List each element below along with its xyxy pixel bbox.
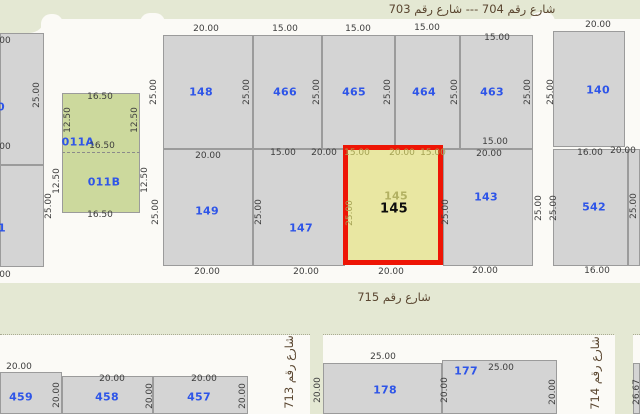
parcel-number-149: 149 (195, 205, 219, 218)
parcel-number-0: 0 (0, 101, 5, 114)
green-area (0, 283, 640, 335)
dimension-label: 20.00 (476, 149, 502, 159)
parcel-number-466: 466 (273, 86, 297, 99)
dimension-label: 20.00 (440, 377, 450, 403)
dimension-label: 20.00 (52, 382, 62, 408)
dimension-label: 20.00 (145, 383, 155, 409)
dimension-label: 12.50 (63, 107, 73, 133)
parcel-number-011B: 011B (88, 176, 121, 189)
parcel-number-147: 147 (289, 222, 313, 235)
dimension-label: 25.00 (151, 199, 161, 225)
parcel-number-178: 178 (373, 384, 397, 397)
dimension-label: 20.00 (378, 267, 404, 277)
dimension-label: 20.00 (311, 148, 337, 158)
dimension-label: 12.50 (140, 167, 150, 193)
parcel-number-457: 457 (187, 391, 211, 404)
dimension-label: 25.00 (546, 79, 556, 105)
parcel-number-148: 148 (189, 86, 213, 99)
dimension-label: 25.00 (312, 79, 322, 105)
dimension-label: 20.00 (472, 266, 498, 276)
dimension-label: 20.00 (585, 20, 611, 30)
parcel-number-465: 465 (342, 86, 366, 99)
dimension-label: 25.00 (549, 195, 559, 221)
dimension-label: 20.00 (293, 267, 319, 277)
parcel-number-140: 140 (586, 84, 610, 97)
dimension-label: 20.00 (389, 148, 415, 158)
dimension-label: 25.00 (441, 199, 451, 225)
dimension-label: 25.00 (32, 82, 42, 108)
dimension-label: 20.00 (548, 379, 558, 405)
street-713: شارع رقم 713 (282, 335, 296, 409)
dimension-label: 15.00 (272, 24, 298, 34)
street-notch (41, 14, 63, 34)
parcel-143[interactable] (443, 149, 533, 266)
dimension-label: 20.00 (238, 383, 248, 409)
dimension-label: 16.50 (87, 210, 113, 220)
green-area (0, 0, 45, 33)
parcel-number-463: 463 (480, 86, 504, 99)
dimension-label: 20.00 (99, 374, 125, 384)
dimension-label: 25.00 (242, 79, 252, 105)
dimension-label: 00 (0, 36, 11, 46)
dimension-label: 16.00 (584, 266, 610, 276)
dimension-label: 25.00 (523, 79, 533, 105)
dimension-label: 00 (0, 142, 11, 152)
parcel-number-458: 458 (95, 391, 119, 404)
street-704-703: شارع رقم 704 --- شارع رقم 703 (389, 2, 556, 16)
dimension-label: 12.50 (52, 168, 62, 194)
street-714: شارع رقم 714 (588, 336, 602, 410)
dimension-label: 25.00 (450, 79, 460, 105)
dimension-label: 16.50 (87, 92, 113, 102)
dimension-label: 25.00 (370, 352, 396, 362)
dimension-label: 15.00 (344, 148, 370, 158)
dimension-label: 16.50 (89, 141, 115, 151)
dimension-label: 15.00 (482, 137, 508, 147)
cadastral-map-canvas[interactable]: 148466465464463140149147143542011A011B01… (0, 0, 640, 414)
dimension-label: 20.00 (194, 267, 220, 277)
dimension-label: 12.50 (130, 107, 140, 133)
parcel-147[interactable] (253, 149, 345, 266)
street-notch (140, 13, 165, 35)
dimension-label: 25.00 (488, 363, 514, 373)
dimension-label: 25.00 (44, 193, 54, 219)
dimension-label: 26.67 (632, 379, 640, 405)
dimension-label: 16.00 (577, 148, 603, 158)
street-715: شارع رقم 715 (357, 290, 431, 304)
dimension-label: 00 (0, 270, 11, 280)
dimension-label: 20.00 (193, 24, 219, 34)
parcel-number-145: 145 (380, 202, 408, 217)
dimension-label: 25.00 (383, 79, 393, 105)
dimension-label: 20.00 (195, 151, 221, 161)
dimension-label: 15.00 (484, 33, 510, 43)
dimension-label: 25.00 (345, 200, 355, 226)
parcel-edge-left-lower[interactable] (0, 165, 44, 267)
parcel-number-464: 464 (412, 86, 436, 99)
dimension-label: 15.00 (270, 148, 296, 158)
dimension-label: 20.00 (313, 377, 323, 403)
dimension-label: 20.00 (610, 146, 636, 156)
parcel-number-1: 1 (0, 222, 6, 235)
dimension-label: 25.00 (629, 193, 639, 219)
dimension-label: 25.00 (149, 79, 159, 105)
dimension-label: 25.00 (534, 195, 544, 221)
green-area (615, 334, 633, 414)
dimension-label: 15.00 (414, 23, 440, 33)
dimension-label: 20.00 (6, 362, 32, 372)
dimension-label: 25.00 (254, 199, 264, 225)
parcel-number-177: 177 (454, 365, 478, 378)
parcel-number-143: 143 (474, 191, 498, 204)
dimension-label: 15.00 (345, 24, 371, 34)
parcel-number-459: 459 (9, 391, 33, 404)
dimension-label: 20.00 (191, 374, 217, 384)
parcel-number-542: 542 (582, 201, 606, 214)
dimension-label: 15.00 (420, 148, 446, 158)
